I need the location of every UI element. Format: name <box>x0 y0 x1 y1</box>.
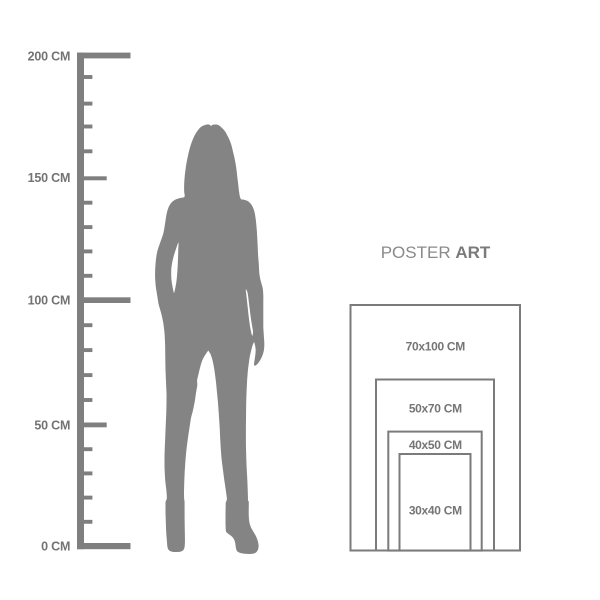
svg-text:POSTER ART: POSTER ART <box>381 243 491 262</box>
svg-text:70x100 CM: 70x100 CM <box>406 340 466 354</box>
svg-text:0 CM: 0 CM <box>41 539 70 553</box>
svg-text:150 CM: 150 CM <box>28 171 71 185</box>
svg-text:40x50 CM: 40x50 CM <box>409 438 462 452</box>
svg-text:30x40 CM: 30x40 CM <box>409 503 462 517</box>
svg-text:100 CM: 100 CM <box>28 294 71 308</box>
svg-text:50x70 CM: 50x70 CM <box>409 402 462 416</box>
svg-text:200 CM: 200 CM <box>28 49 71 63</box>
svg-text:50 CM: 50 CM <box>34 418 70 432</box>
